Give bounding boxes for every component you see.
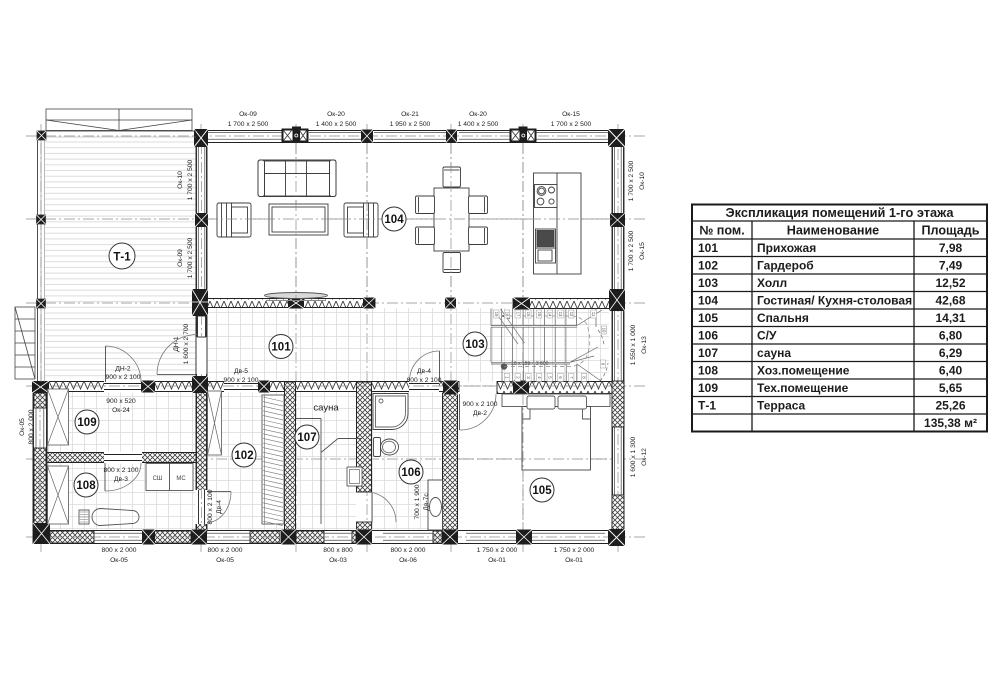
- svg-text:ДН-2: ДН-2: [115, 366, 131, 373]
- svg-text:Ок-15: Ок-15: [562, 111, 580, 118]
- svg-text:900 x 2 100: 900 x 2 100: [106, 374, 141, 381]
- svg-text:14: 14: [547, 312, 552, 317]
- svg-text:Холл: Холл: [757, 276, 787, 290]
- svg-text:Ок-21: Ок-21: [401, 111, 419, 118]
- svg-text:Ок-10: Ок-10: [639, 172, 646, 190]
- svg-text:Дв-7с: Дв-7с: [423, 493, 430, 511]
- svg-text:25,26: 25,26: [935, 399, 965, 413]
- svg-text:6,80: 6,80: [939, 329, 963, 343]
- svg-text:1 700 x 2 500: 1 700 x 2 500: [187, 159, 194, 200]
- svg-text:1 700 x 2 500: 1 700 x 2 500: [628, 160, 635, 201]
- svg-text:14,31: 14,31: [935, 311, 965, 325]
- svg-text:800 x 2 000: 800 x 2 000: [391, 547, 426, 554]
- svg-text:1 700 x 2 500: 1 700 x 2 500: [228, 121, 269, 128]
- svg-text:Ок-12: Ок-12: [641, 448, 648, 466]
- svg-text:108: 108: [76, 480, 96, 492]
- svg-text:Гардероб: Гардероб: [757, 259, 814, 273]
- svg-text:101: 101: [698, 241, 718, 255]
- svg-text:Ок-24: Ок-24: [112, 407, 130, 414]
- svg-text:1 950 x 2 500: 1 950 x 2 500: [390, 121, 431, 128]
- svg-text:сауна: сауна: [313, 403, 339, 414]
- svg-text:Ок-05: Ок-05: [216, 557, 234, 564]
- svg-text:15: 15: [537, 312, 542, 317]
- svg-text:Т-1: Т-1: [113, 252, 131, 264]
- svg-text:1 750 x 2 000: 1 750 x 2 000: [477, 547, 518, 554]
- svg-text:800 x 2 100: 800 x 2 100: [407, 377, 442, 384]
- svg-text:900 x 2 100: 900 x 2 100: [463, 401, 498, 408]
- svg-text:13: 13: [558, 312, 563, 317]
- svg-text:800 x 2 000: 800 x 2 000: [102, 547, 137, 554]
- svg-text:800 x 2 100: 800 x 2 100: [207, 489, 214, 524]
- svg-text:1 600 x 1 300: 1 600 x 1 300: [630, 436, 637, 477]
- svg-text:сауна: сауна: [757, 346, 791, 360]
- svg-text:10 x 159 = 3 600: 10 x 159 = 3 600: [511, 361, 549, 367]
- svg-text:Экспликация помещений 1-го эта: Экспликация помещений 1-го этажа: [726, 205, 955, 220]
- svg-text:Наименование: Наименование: [787, 224, 879, 238]
- svg-text:18: 18: [505, 312, 510, 317]
- svg-text:109: 109: [77, 417, 96, 429]
- svg-text:800 x 2 100: 800 x 2 100: [104, 467, 139, 474]
- svg-text:900 x 520: 900 x 520: [106, 398, 136, 405]
- svg-text:1 600 x 2 700: 1 600 x 2 700: [183, 323, 190, 364]
- svg-text:Дв-2: Дв-2: [473, 410, 487, 417]
- svg-text:5,65: 5,65: [939, 381, 963, 395]
- svg-text:7,49: 7,49: [939, 259, 963, 273]
- svg-text:42,68: 42,68: [935, 294, 965, 308]
- svg-text:МС: МС: [176, 476, 186, 482]
- svg-text:105: 105: [698, 311, 718, 325]
- svg-text:17: 17: [515, 312, 520, 317]
- svg-text:16: 16: [526, 312, 531, 317]
- svg-text:Ок-13: Ок-13: [641, 336, 648, 354]
- svg-text:Гостиная/ Кухня-столовая: Гостиная/ Кухня-столовая: [757, 294, 912, 308]
- svg-text:Ок-01: Ок-01: [488, 557, 506, 564]
- svg-text:1 400 x 2 500: 1 400 x 2 500: [458, 121, 499, 128]
- svg-text:800 x 2 000: 800 x 2 000: [28, 409, 35, 444]
- svg-text:Прихожая: Прихожая: [757, 241, 816, 255]
- svg-text:Ок-20: Ок-20: [327, 111, 345, 118]
- svg-text:1 700 x 2 500: 1 700 x 2 500: [628, 230, 635, 271]
- svg-text:108: 108: [698, 364, 718, 378]
- svg-text:Терраса: Терраса: [757, 399, 806, 413]
- svg-text:Ок-05: Ок-05: [19, 418, 26, 436]
- svg-text:104: 104: [698, 294, 718, 308]
- svg-text:6,29: 6,29: [939, 346, 963, 360]
- svg-text:19: 19: [494, 312, 499, 317]
- svg-text:1 400 x 2 500: 1 400 x 2 500: [316, 121, 357, 128]
- svg-text:Ок-20: Ок-20: [469, 111, 487, 118]
- svg-text:Дв-4: Дв-4: [216, 500, 223, 514]
- svg-text:106: 106: [698, 329, 718, 343]
- svg-text:104: 104: [384, 214, 404, 226]
- svg-text:105: 105: [532, 485, 552, 497]
- svg-text:ДН-1: ДН-1: [173, 336, 180, 352]
- svg-text:Площадь: Площадь: [921, 224, 979, 238]
- svg-text:Т-1: Т-1: [698, 399, 716, 413]
- svg-text:10: 10: [602, 328, 607, 333]
- svg-text:Ок-01: Ок-01: [565, 557, 583, 564]
- svg-text:102: 102: [698, 259, 718, 273]
- svg-text:СШ: СШ: [153, 476, 163, 482]
- svg-text:107: 107: [698, 346, 718, 360]
- svg-text:700 x 1 900: 700 x 1 900: [414, 484, 421, 519]
- svg-text:7,98: 7,98: [939, 241, 963, 255]
- svg-text:107: 107: [297, 432, 316, 444]
- svg-text:Ок-09: Ок-09: [239, 111, 257, 118]
- svg-text:Ок-05: Ок-05: [110, 557, 128, 564]
- svg-text:800 x 2 000: 800 x 2 000: [208, 547, 243, 554]
- svg-text:Ок-03: Ок-03: [329, 557, 347, 564]
- svg-text:103: 103: [465, 339, 484, 351]
- svg-text:№ пом.: № пом.: [699, 224, 745, 238]
- svg-text:103: 103: [698, 276, 718, 290]
- svg-text:1 700 x 2 500: 1 700 x 2 500: [551, 121, 592, 128]
- svg-text:Тех.помещение: Тех.помещение: [757, 381, 849, 395]
- svg-text:135,38 м²: 135,38 м²: [924, 416, 977, 430]
- svg-text:С/У: С/У: [757, 329, 777, 343]
- svg-text:1 550 x 1 000: 1 550 x 1 000: [630, 324, 637, 365]
- svg-text:102: 102: [234, 450, 253, 462]
- svg-text:Хоз.помещение: Хоз.помещение: [757, 364, 850, 378]
- svg-text:101: 101: [271, 342, 291, 354]
- svg-text:Ок-09: Ок-09: [177, 249, 184, 267]
- svg-text:Дв-4: Дв-4: [417, 368, 431, 375]
- svg-text:109: 109: [698, 381, 718, 395]
- svg-text:800 x 800: 800 x 800: [323, 547, 353, 554]
- svg-text:6,40: 6,40: [939, 364, 963, 378]
- svg-text:Дв-3: Дв-3: [114, 476, 128, 483]
- svg-text:Ок-06: Ок-06: [399, 557, 417, 564]
- svg-text:900 x 2 100: 900 x 2 100: [224, 377, 259, 384]
- svg-text:Спальня: Спальня: [757, 311, 809, 325]
- svg-text:106: 106: [401, 467, 420, 479]
- svg-text:Ок-10: Ок-10: [177, 171, 184, 189]
- svg-text:1 700 x 2 500: 1 700 x 2 500: [187, 237, 194, 278]
- svg-text:Дв-5: Дв-5: [234, 368, 248, 375]
- svg-text:Ок-15: Ок-15: [639, 242, 646, 260]
- svg-text:1 750 x 2 000: 1 750 x 2 000: [554, 547, 595, 554]
- svg-text:12,52: 12,52: [935, 276, 965, 290]
- svg-text:12: 12: [569, 312, 574, 317]
- svg-text:11: 11: [591, 312, 596, 317]
